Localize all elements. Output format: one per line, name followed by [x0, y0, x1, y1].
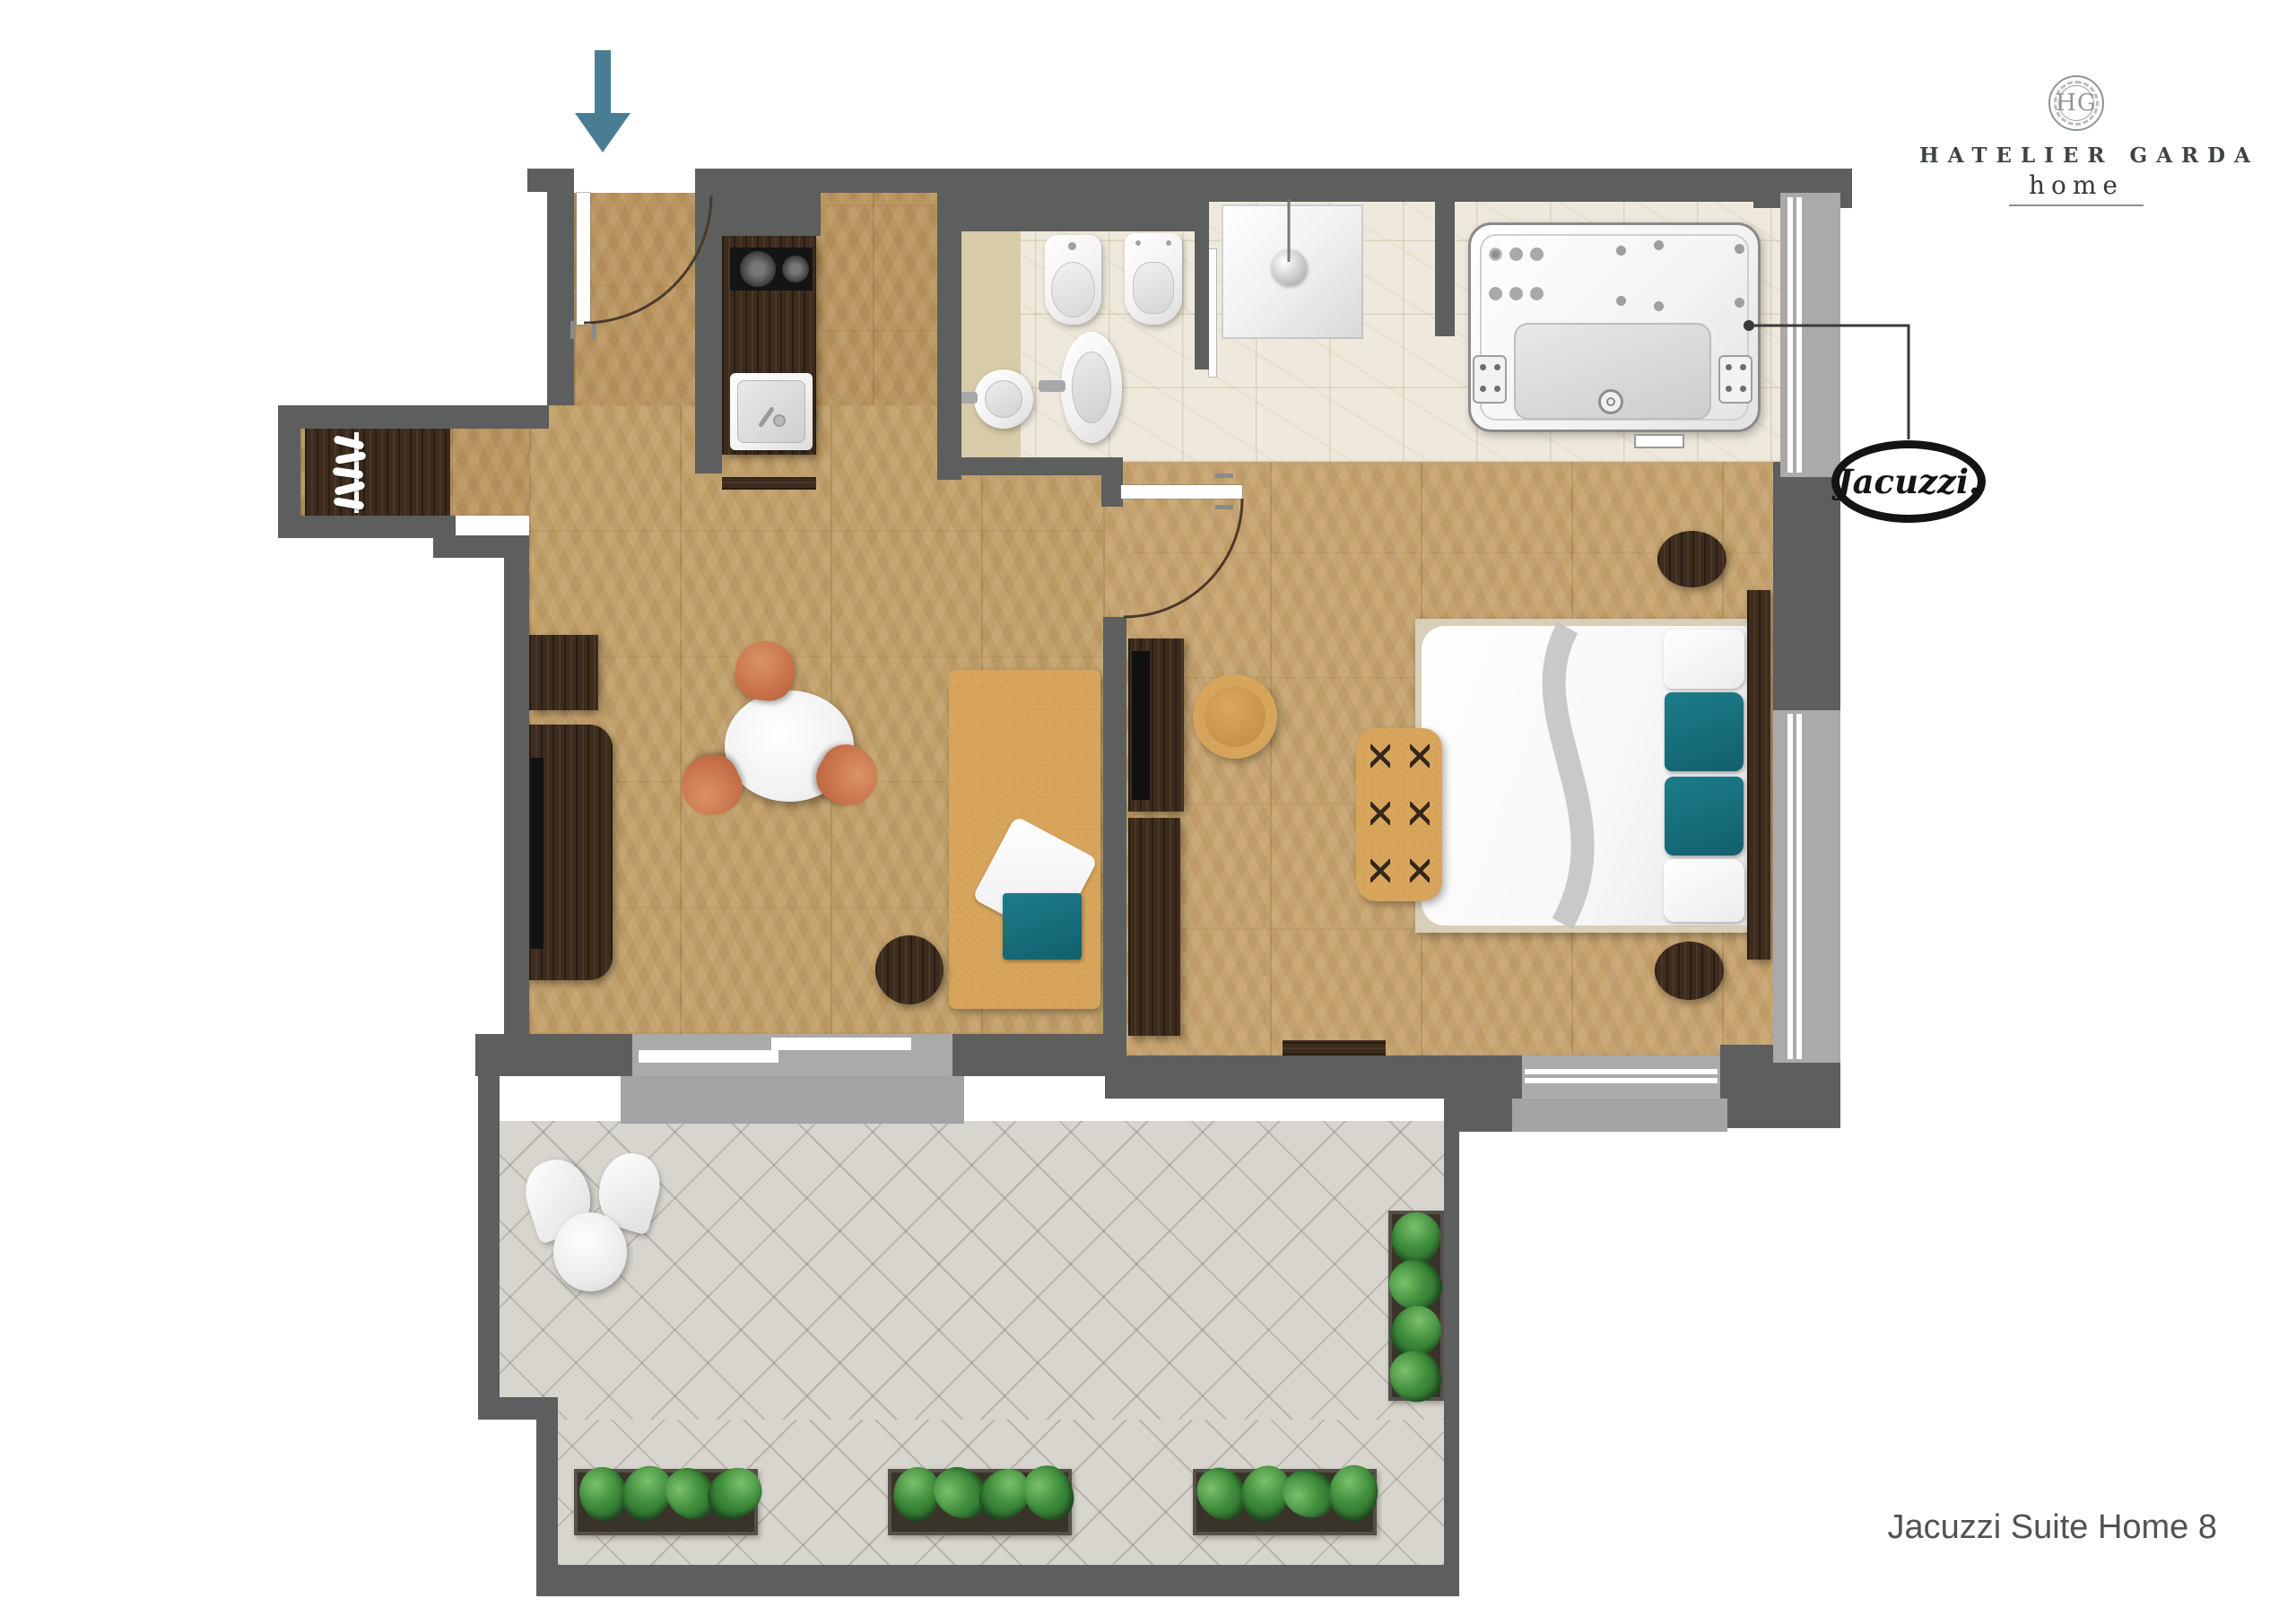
bench-tuft-icon — [1370, 802, 1390, 825]
window-bedroom-bottom-pane — [1525, 1078, 1718, 1083]
window-bedroom-bottom-pane — [1525, 1069, 1718, 1074]
plan-title: Jacuzzi Suite Home 8 — [1794, 1508, 2217, 1547]
wall-entry-left — [547, 169, 574, 405]
brand-monogram: HG — [2056, 90, 2096, 117]
floor-plan-page: HG HATELIER GARDA home Jacuzzi. Jacuzzi … — [0, 0, 2296, 1616]
wall-wc-door-stub — [1101, 457, 1123, 507]
jacuzzi-step-handle — [1634, 434, 1684, 448]
bench-tuft-icon — [1410, 744, 1430, 768]
washbasin-pedestal-tap-icon — [1039, 380, 1065, 392]
kitchen-base-strip — [722, 477, 816, 490]
sill-living-window — [621, 1076, 964, 1124]
window-bedroom-bottom — [1522, 1056, 1720, 1099]
bidet-tap-icon — [1068, 242, 1076, 250]
bed-pillow-teal-top — [1665, 692, 1744, 771]
jacuzzi-drain-center-icon — [1606, 397, 1615, 406]
shower-head-icon — [1271, 249, 1307, 285]
wall-terrace-bottom — [536, 1565, 1459, 1596]
side-pouf — [875, 935, 944, 1004]
wall-terrace-left — [478, 1076, 500, 1420]
washbasin-round-bowl — [985, 380, 1022, 418]
wall-right-mid — [1773, 462, 1840, 710]
cooktop-burner-large-icon — [740, 251, 776, 287]
bedroom-console — [1283, 1040, 1386, 1056]
wall-nook-bottom — [278, 516, 456, 538]
brand-name: HATELIER GARDA — [1919, 143, 2233, 168]
bedroom-tv-panel — [1132, 651, 1150, 800]
wall-living-bottom-left — [475, 1034, 632, 1076]
brand-sub: home — [1919, 170, 2233, 200]
bed-headboard — [1747, 590, 1770, 960]
nightstand-bottom — [1655, 942, 1724, 1000]
bidet-bowl — [1051, 262, 1095, 317]
wall-top-kitchen — [722, 169, 821, 236]
sill-bedroom-window — [1512, 1099, 1727, 1132]
shrub-icon — [579, 1467, 626, 1521]
door-terrace-pane-outer — [639, 1050, 778, 1063]
brand-logo: HG HATELIER GARDA home — [1919, 75, 2233, 210]
wc-door-leaf — [1121, 485, 1242, 499]
wall-nook-top — [278, 405, 549, 429]
terrace-table — [553, 1212, 627, 1291]
wall-shower-jacuzzi — [1435, 169, 1455, 336]
window-jacuzzi-right-pane — [1787, 197, 1793, 473]
bedroom-armchair-seat — [1205, 686, 1265, 747]
bed-pillow-teal-bottom — [1665, 777, 1744, 856]
wall-terrace-right-top — [1444, 1076, 1522, 1132]
window-bedroom-right-pane — [1796, 714, 1802, 1059]
entrance-arrow-down-icon — [575, 50, 631, 152]
wall-bedroom-left — [1103, 617, 1126, 1076]
entry-door-leaf — [577, 193, 590, 325]
bed-pillow-white-bottom — [1664, 859, 1744, 922]
wc-door-frame-mark — [1215, 474, 1233, 478]
door-terrace-pane-inner — [771, 1038, 911, 1050]
bedroom-passage-floor — [1103, 502, 1130, 617]
wall-terrace-notch — [478, 1397, 558, 1420]
kitchen-sink-drain-icon — [773, 414, 786, 427]
brand-underline — [2009, 204, 2144, 206]
wall-kitchen-bath — [937, 169, 961, 480]
jacuzzi-panel-left-dots-icon — [1480, 364, 1486, 370]
entry-wardrobe — [305, 429, 450, 516]
entry-door-frame-mark — [592, 321, 596, 339]
bench-tuft-icon — [1410, 802, 1430, 825]
wall-entry-top-stub — [527, 169, 574, 192]
window-jacuzzi-right-pane — [1796, 197, 1802, 473]
jacuzzi-control-panel-left — [1473, 355, 1507, 404]
toilet-seat — [1133, 262, 1174, 314]
toilet-flush-buttons-icon — [1135, 240, 1141, 246]
jacuzzi-jet-dots-icon — [1616, 246, 1626, 256]
jacuzzi-brand-badge: Jacuzzi. — [1831, 440, 1986, 523]
bench-tuft-icon — [1370, 859, 1390, 882]
bench-tuft-icon — [1410, 859, 1430, 882]
jacuzzi-jet-cluster-icon — [1489, 248, 1502, 261]
window-bedroom-right-pane — [1787, 714, 1793, 1059]
window-bedroom-right — [1773, 710, 1840, 1063]
jacuzzi-brand-label: Jacuzzi. — [1837, 462, 1980, 501]
wall-terrace-right — [1444, 1121, 1459, 1596]
washbasin-pedestal-bowl — [1072, 352, 1111, 423]
sideboard-upper — [529, 635, 598, 710]
bed-pillow-white-top — [1664, 630, 1744, 689]
wall-top-wc — [961, 169, 1209, 231]
jacuzzi-control-panel-right — [1718, 355, 1752, 404]
shower-glass-partition — [1209, 249, 1216, 377]
entry-hall-floor — [574, 193, 698, 413]
wall-wc-shower — [1195, 169, 1209, 369]
bench-tuft-icon — [1370, 744, 1390, 768]
jacuzzi-panel-right-dots-icon — [1726, 364, 1732, 370]
wall-kitchen-jamb — [695, 169, 722, 474]
wc-door-frame-mark — [1215, 505, 1233, 509]
entry-door-frame-mark — [570, 321, 575, 339]
daybed-throw — [1003, 893, 1082, 960]
wall-living-bottom-right — [952, 1034, 1105, 1076]
nightstand-top — [1657, 531, 1726, 587]
cooktop-burner-small-icon — [782, 256, 809, 282]
wall-living-left — [504, 535, 529, 1034]
brand-monogram-circle: HG — [2048, 75, 2104, 131]
sideboard-groove — [531, 758, 544, 949]
bedroom-dresser — [1128, 818, 1180, 1036]
wall-wc-bottom — [937, 457, 1119, 475]
